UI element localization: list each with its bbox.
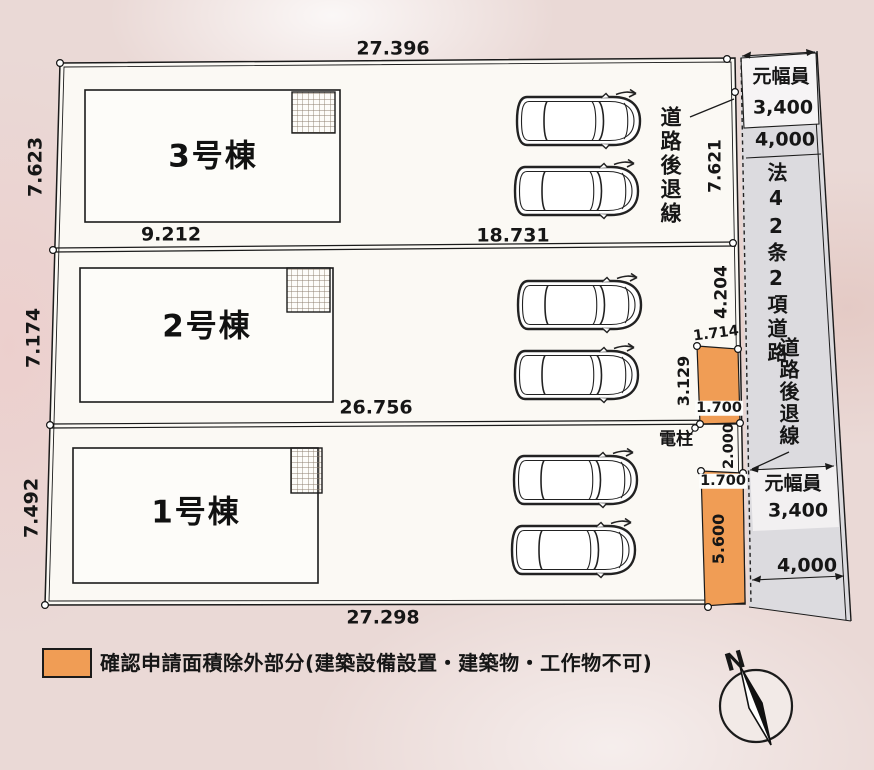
dim-b2-left: 7.174 xyxy=(25,308,44,368)
setback-line-label-1: 道路後退線 xyxy=(659,106,680,226)
car-icon xyxy=(512,519,635,578)
orig-width-value-bottom: 3,400 xyxy=(768,502,828,521)
compass-icon xyxy=(720,666,792,745)
road-name-label: 法42条2項道路 xyxy=(766,162,786,366)
building-2-hatch xyxy=(287,268,330,312)
setback-line-label-2: 道路後退線 xyxy=(778,337,798,447)
legend-label: 確認申請面積除外部分(建築設備設置・建築物・工作物不可) xyxy=(100,653,652,673)
utility-pole-label: 電柱 xyxy=(659,432,693,449)
road-width-bottom: 4,000 xyxy=(777,557,837,576)
building-1-hatch xyxy=(291,448,322,493)
building-3-hatch xyxy=(292,92,335,133)
building-2-label: 2号棟 xyxy=(162,312,252,343)
car-icon xyxy=(517,90,640,149)
site-plan-page: 27.396 7.623 9.212 18.731 7.174 26.756 7… xyxy=(0,0,874,770)
dim-site-bottom: 27.298 xyxy=(346,609,419,628)
car-icon xyxy=(515,160,638,219)
building-1-label: 1号棟 xyxy=(151,498,241,529)
dim-b3-w2: 18.731 xyxy=(476,227,549,246)
road-width-top: 4,000 xyxy=(755,131,815,150)
dim-orange2-top: 1.700 xyxy=(699,474,747,489)
dim-gap: 2.000 xyxy=(722,423,737,469)
orig-width-value-top: 3,400 xyxy=(753,99,813,118)
dim-right-top: 7.621 xyxy=(708,139,725,193)
legend-orange-swatch xyxy=(42,648,92,678)
orig-width-label-bottom: 元幅員 xyxy=(764,475,821,494)
dim-right-mid: 4.204 xyxy=(714,265,731,319)
dim-b1-left: 7.492 xyxy=(23,478,42,538)
dim-orange2-left: 5.600 xyxy=(711,514,727,565)
building-3-label: 3号棟 xyxy=(168,142,258,173)
dim-b2-bottom: 26.756 xyxy=(339,399,412,418)
car-icon xyxy=(515,344,638,403)
orig-width-label-top: 元幅員 xyxy=(752,68,809,87)
car-icon xyxy=(514,449,637,508)
dim-orange1-bottom: 1.700 xyxy=(695,401,743,416)
dim-orange1-left: 3.129 xyxy=(676,356,692,407)
dim-site-top: 27.396 xyxy=(356,40,429,59)
dim-b3-w1: 9.212 xyxy=(141,226,201,245)
car-icon xyxy=(518,274,641,333)
dim-b3-left: 7.623 xyxy=(27,137,46,197)
